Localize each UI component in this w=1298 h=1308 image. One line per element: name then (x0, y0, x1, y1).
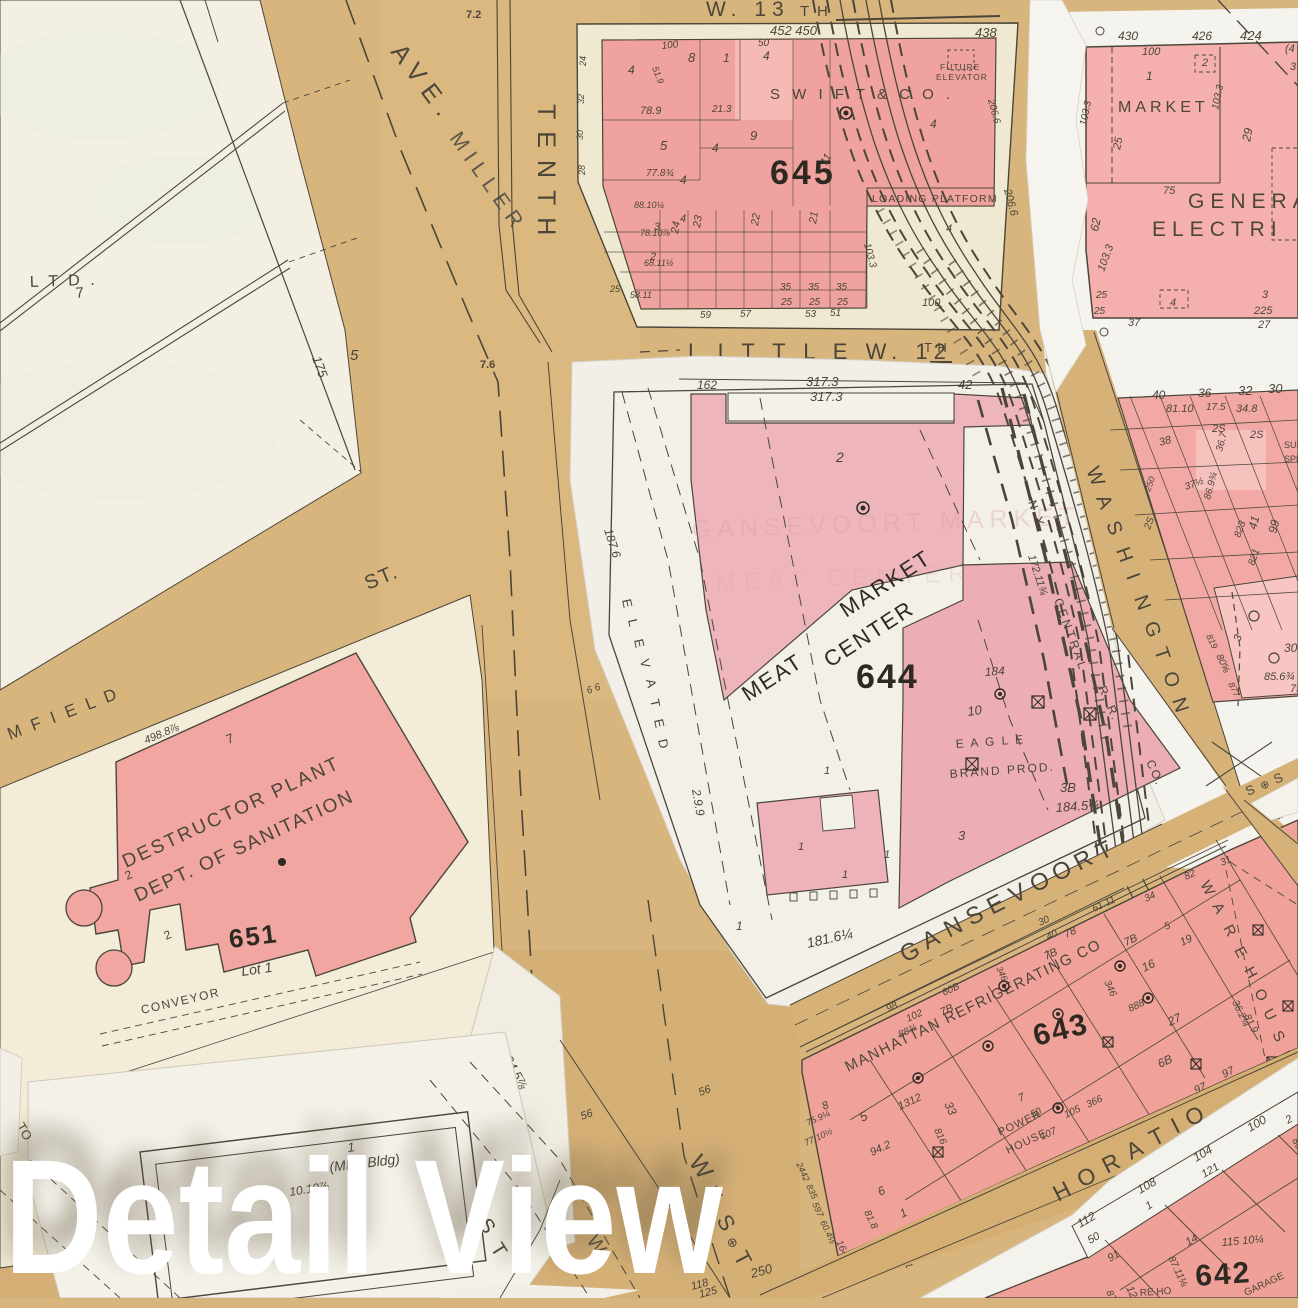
svg-text:85.6¾: 85.6¾ (1264, 671, 1295, 683)
svg-text:42: 42 (958, 377, 973, 392)
svg-text:25: 25 (1095, 290, 1108, 301)
svg-text:25: 25 (1093, 306, 1106, 317)
svg-text:MARKET: MARKET (1118, 99, 1209, 116)
svg-text:24: 24 (578, 56, 588, 67)
svg-text:FUTURE: FUTURE (940, 62, 980, 72)
svg-text:10: 10 (966, 702, 983, 719)
svg-text:100: 100 (922, 297, 941, 309)
svg-text:7: 7 (75, 284, 85, 302)
svg-text:25: 25 (609, 284, 621, 294)
svg-text:GENERA: GENERA (1188, 190, 1298, 213)
svg-text:2: 2 (1201, 57, 1208, 69)
svg-text:36: 36 (1198, 386, 1212, 400)
svg-text:78.10⅞: 78.10⅞ (640, 228, 671, 238)
svg-text:51: 51 (830, 308, 841, 319)
svg-text:37: 37 (1128, 317, 1141, 329)
svg-text:430: 430 (1118, 29, 1138, 43)
svg-text:644: 644 (856, 658, 919, 696)
svg-text:4: 4 (930, 117, 937, 131)
svg-text:438: 438 (975, 25, 997, 40)
svg-text:1: 1 (884, 849, 890, 861)
svg-text:651: 651 (227, 918, 280, 954)
svg-text:59: 59 (700, 310, 712, 321)
svg-text:7.2: 7.2 (466, 9, 481, 21)
svg-text:25: 25 (808, 297, 821, 308)
svg-text:21: 21 (807, 210, 821, 225)
svg-text:58.11: 58.11 (630, 290, 652, 300)
svg-text:162: 162 (697, 378, 717, 392)
svg-text:4: 4 (680, 173, 687, 187)
svg-text:32: 32 (1238, 383, 1253, 398)
svg-text:57: 57 (740, 309, 752, 320)
svg-text:35: 35 (808, 282, 820, 293)
svg-text:78.9: 78.9 (640, 105, 661, 117)
svg-text:225: 225 (1253, 305, 1273, 317)
svg-text:24: 24 (669, 220, 683, 235)
svg-text:8: 8 (688, 50, 696, 65)
svg-text:317.3: 317.3 (810, 389, 843, 404)
svg-text:ELECTRI: ELECTRI (1152, 218, 1283, 241)
svg-text:5: 5 (350, 347, 359, 364)
svg-text:88.10¼: 88.10¼ (634, 200, 665, 210)
svg-text:35: 35 (836, 282, 848, 293)
svg-text:426: 426 (1192, 29, 1212, 43)
svg-text:53: 53 (805, 309, 817, 320)
svg-text:4: 4 (712, 141, 719, 155)
svg-text:28: 28 (577, 165, 587, 176)
svg-text:3: 3 (1290, 61, 1297, 73)
svg-text:25: 25 (780, 297, 793, 308)
svg-text:317.3: 317.3 (806, 374, 839, 389)
svg-text:75: 75 (1163, 185, 1176, 197)
svg-text:30: 30 (575, 130, 585, 140)
svg-text:1: 1 (736, 919, 743, 933)
svg-text:1: 1 (842, 869, 848, 881)
svg-text:2: 2 (835, 449, 844, 465)
svg-text:SPR: SPR (1284, 454, 1298, 464)
svg-text:4: 4 (763, 49, 770, 63)
svg-text:5: 5 (660, 138, 668, 153)
svg-text:ELEVATOR: ELEVATOR (936, 72, 988, 82)
svg-text:75.: 75. (1290, 683, 1298, 695)
svg-text:27: 27 (1257, 319, 1271, 331)
svg-text:68.11½: 68.11½ (644, 258, 674, 268)
svg-text:25: 25 (836, 297, 849, 308)
svg-text:1: 1 (798, 841, 804, 853)
svg-text:34.8: 34.8 (1236, 403, 1258, 415)
svg-text:3: 3 (1262, 289, 1269, 301)
svg-text:(4: (4 (1285, 43, 1295, 55)
svg-text:L T D .: L T D . (30, 272, 98, 291)
svg-text:RE HO: RE HO (1139, 1286, 1172, 1298)
svg-text:35: 35 (780, 282, 792, 293)
svg-text:W. 13: W. 13 (706, 0, 790, 21)
svg-text:21.3: 21.3 (711, 104, 732, 115)
svg-text:1: 1 (1146, 69, 1153, 83)
svg-text:3B: 3B (1060, 780, 1076, 795)
svg-text:184: 184 (984, 664, 1005, 679)
svg-text:17.5: 17.5 (1206, 402, 1226, 413)
svg-text:424: 424 (1240, 28, 1262, 43)
svg-text:2S: 2S (1249, 429, 1264, 441)
svg-text:32: 32 (576, 94, 586, 104)
svg-text:TENTH: TENTH (532, 104, 560, 247)
svg-text:7.6: 7.6 (480, 359, 495, 371)
svg-text:452 450: 452 450 (770, 23, 818, 38)
svg-text:T H: T H (924, 340, 948, 355)
svg-text:81.10: 81.10 (1166, 403, 1194, 415)
svg-text:77.8¾: 77.8¾ (646, 168, 674, 179)
svg-text:4: 4 (628, 63, 635, 77)
svg-text:SUP: SUP (1284, 440, 1298, 450)
svg-text:1: 1 (824, 765, 830, 777)
svg-text:50: 50 (758, 38, 770, 49)
svg-text:40: 40 (1152, 388, 1166, 402)
svg-text:22: 22 (749, 212, 763, 227)
svg-text:9: 9 (750, 128, 757, 143)
svg-text:1: 1 (723, 51, 730, 65)
svg-text:30: 30 (1268, 381, 1283, 396)
svg-text:3: 3 (958, 828, 966, 843)
svg-text:30: 30 (1284, 641, 1298, 655)
svg-text:4: 4 (1170, 297, 1176, 309)
svg-text:100: 100 (661, 39, 679, 52)
svg-text:100: 100 (1142, 46, 1161, 58)
